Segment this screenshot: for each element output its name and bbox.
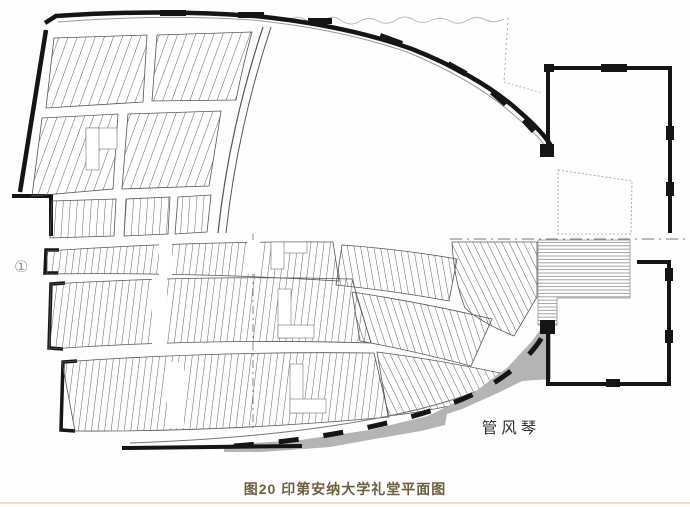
wall-pilaster [666,182,674,196]
seat-block [50,199,116,238]
balcony-seating [32,27,271,238]
wall-pilaster [160,10,186,16]
floor-plan: ① [0,0,690,475]
seat-bank-fan [377,352,500,416]
seat-block [122,111,221,189]
stage [538,240,630,325]
wall-pilaster [665,330,673,343]
wall-pilaster [665,268,673,281]
stage-floor [538,240,630,325]
stage-front-wall [122,446,302,448]
bottom-divider [0,502,690,504]
aisle [167,362,184,428]
wall-pilaster [380,36,402,44]
seat-block [152,32,252,101]
aisle [152,277,167,344]
wall-junction [540,320,555,334]
stage-house-rooms [540,64,674,387]
upper-room-walls [548,68,670,233]
sightline-outline [558,170,632,234]
seating-cutout [278,325,314,338]
wall-junction [540,144,554,157]
section-marker: ① [14,259,28,276]
seat-bank [49,278,371,349]
seat-block [32,114,118,196]
seating-cutout [290,399,326,413]
seat-block [175,195,211,234]
seat-block [46,35,147,108]
figure-page: ① [0,0,690,507]
wall-pilaster [601,64,627,72]
aisle [159,241,172,275]
wall-pilaster [544,64,554,72]
figure-caption: 图20 印第安纳大学礼堂平面图 [0,479,690,499]
seat-block [124,197,170,236]
main-floor-seating [47,240,549,443]
organ-label: 管风琴 [482,419,541,437]
wall-pilaster [308,18,332,24]
seating-cutout [86,128,99,170]
aisle [247,240,260,274]
seating-cutout [271,242,284,269]
wall-pilaster [238,12,264,18]
seat-bank [62,353,389,431]
wall-pilaster [606,379,620,387]
wall-pilaster [666,126,674,140]
